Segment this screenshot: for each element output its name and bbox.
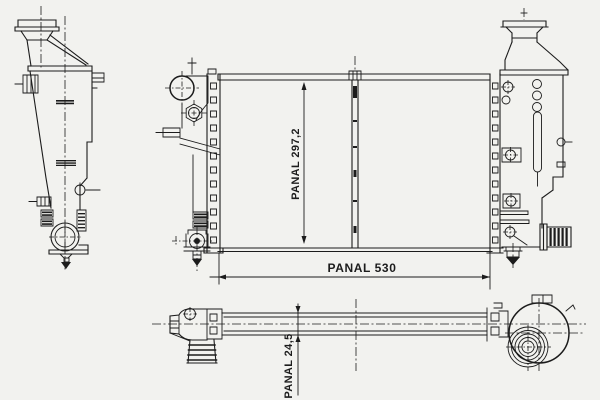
dimension-core-depth: PANAL 24,5	[283, 304, 301, 399]
left-drain-assembly	[172, 212, 212, 271]
drain-tip	[61, 262, 71, 269]
bleed-pin	[188, 58, 196, 74]
hose-connector-upper	[15, 75, 38, 93]
expansion-tank-side-view	[15, 6, 104, 272]
mounting-bracket-right	[487, 74, 503, 253]
overflow-nipple	[92, 73, 104, 88]
core-width-label: PANAL 530	[328, 261, 397, 275]
hose-connector-lower	[29, 197, 51, 206]
bottom-valve-assembly	[41, 210, 88, 269]
technical-drawing-page: PANAL 297,2 PANAL 530 PANAL 24,5	[0, 0, 600, 400]
filler-neck	[501, 8, 568, 70]
radiator-top-view	[152, 295, 586, 372]
filler-neck-top-view	[505, 295, 585, 372]
radiator-technical-drawing: PANAL 297,2 PANAL 530 PANAL 24,5	[0, 0, 600, 400]
top-header	[218, 74, 490, 80]
dimension-core-width: PANAL 530	[210, 253, 490, 289]
radiator-front-view	[156, 8, 572, 271]
center-divider	[349, 56, 361, 248]
core-height-label: PANAL 297,2	[290, 128, 302, 200]
right-side-tank	[500, 70, 572, 270]
outlet-pipe	[540, 224, 571, 250]
core-bottom-edge	[218, 248, 492, 252]
core-depth-label: PANAL 24,5	[283, 333, 295, 398]
dimension-core-height: PANAL 297,2	[290, 82, 307, 244]
